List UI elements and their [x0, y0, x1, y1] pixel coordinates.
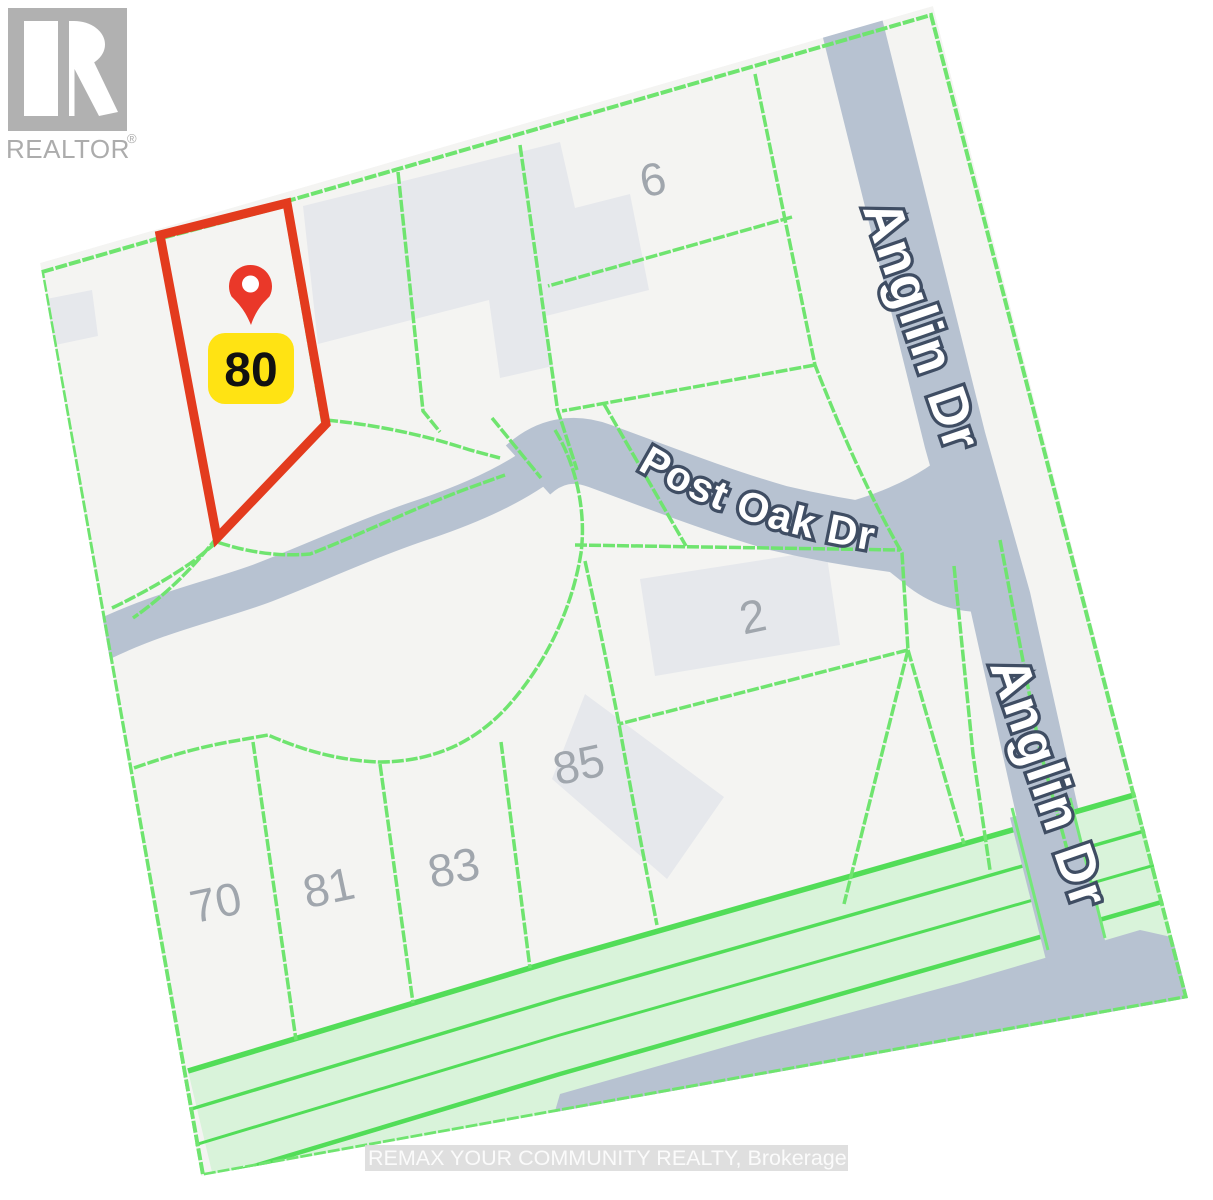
svg-text:70: 70: [185, 872, 246, 934]
svg-text:®: ®: [127, 131, 137, 146]
svg-text:REMAX YOUR COMMUNITY REALTY, B: REMAX YOUR COMMUNITY REALTY, Brokerage: [368, 1146, 847, 1170]
svg-text:81: 81: [298, 857, 359, 919]
svg-text:REALTOR: REALTOR: [6, 134, 130, 164]
svg-text:80: 80: [224, 344, 277, 397]
svg-text:85: 85: [548, 734, 609, 796]
svg-text:83: 83: [423, 837, 484, 899]
